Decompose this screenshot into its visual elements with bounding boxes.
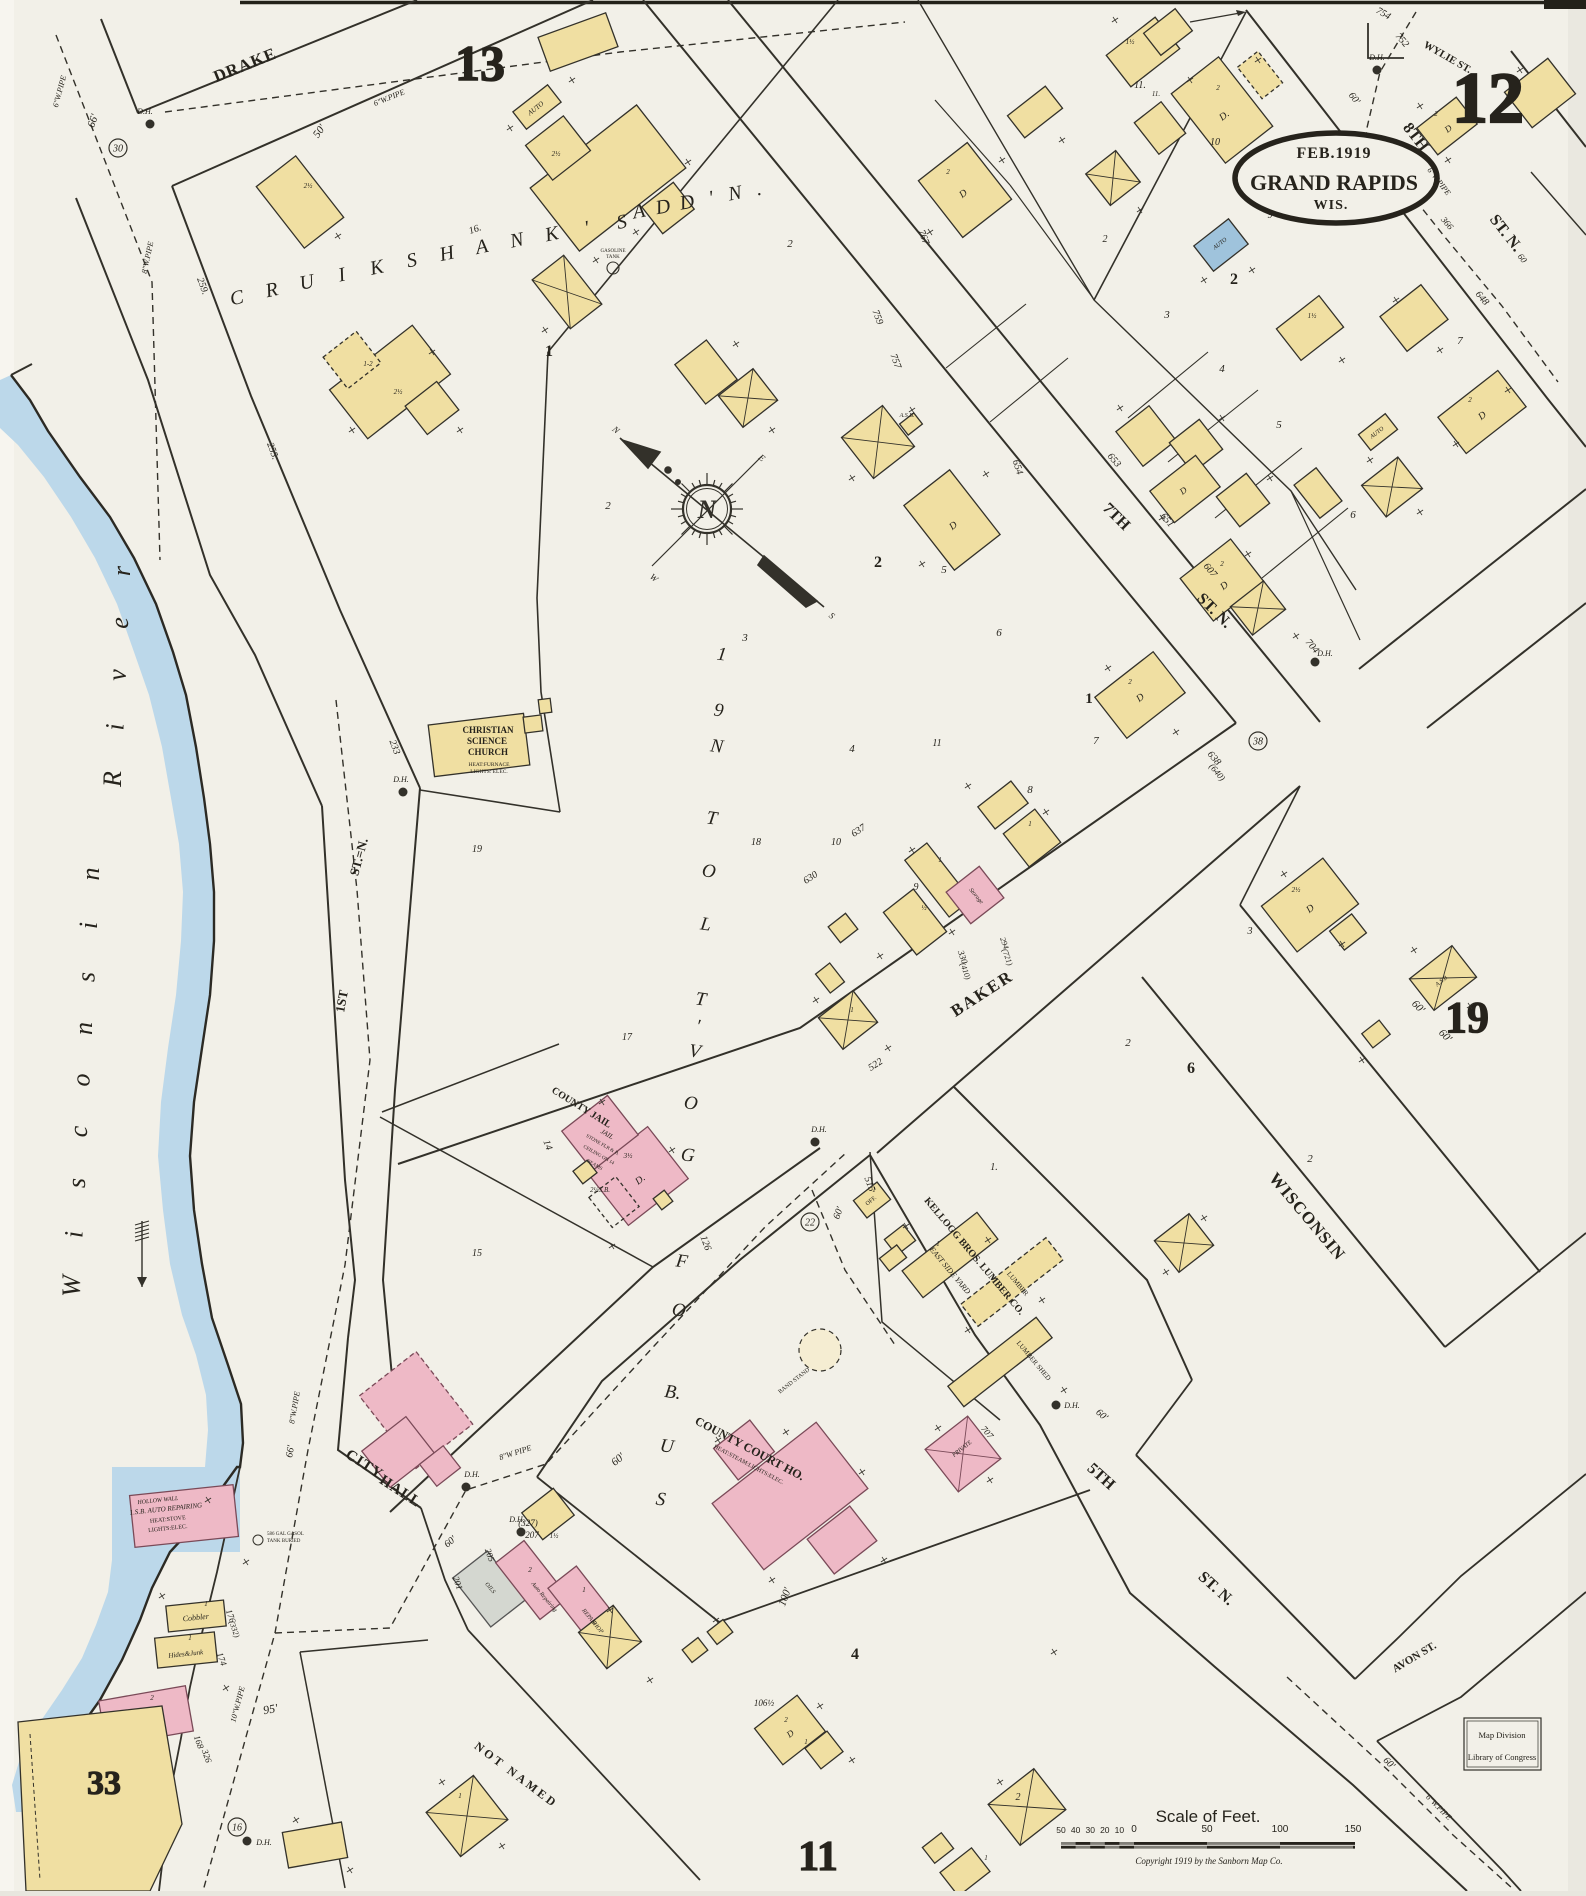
svg-text:95': 95': [262, 1701, 279, 1717]
svg-text:100: 100: [1272, 1824, 1289, 1835]
svg-text:8: 8: [1027, 784, 1033, 796]
svg-text:11.: 11.: [1134, 80, 1146, 91]
svg-text:4: 4: [851, 1646, 859, 1663]
svg-text:30: 30: [112, 144, 123, 155]
svg-text:1: 1: [545, 343, 553, 360]
svg-text:D.H.: D.H.: [463, 1470, 480, 1479]
svg-text:50: 50: [1201, 1824, 1213, 1835]
svg-text:W: W: [57, 1273, 86, 1297]
svg-text:LIGHTS: ELEC.: LIGHTS: ELEC.: [470, 769, 508, 775]
svg-text:11: 11: [932, 738, 941, 749]
svg-text:2: 2: [1125, 1037, 1131, 1049]
svg-text:4: 4: [1219, 363, 1225, 375]
svg-text:1: 1: [872, 1186, 876, 1194]
svg-text:17: 17: [622, 1032, 633, 1043]
svg-text:1.: 1.: [990, 1162, 998, 1173]
svg-text:D.H.: D.H.: [1368, 53, 1385, 62]
svg-text:13: 13: [455, 35, 505, 91]
svg-text:1: 1: [188, 1634, 192, 1642]
svg-text:2: 2: [1103, 234, 1108, 245]
svg-text:1: 1: [1085, 691, 1093, 707]
svg-text:s: s: [71, 972, 100, 982]
svg-text:SCIENCE: SCIENCE: [467, 736, 507, 746]
svg-text:2: 2: [528, 1566, 532, 1574]
svg-text:4: 4: [849, 743, 855, 755]
svg-text:i: i: [74, 922, 103, 929]
svg-text:WIS.: WIS.: [1314, 198, 1349, 213]
svg-text:CHRISTIAN: CHRISTIAN: [462, 725, 514, 735]
svg-text:Copyright 1919 by the Sanborn: Copyright 1919 by the Sanborn Map Co.: [1135, 1856, 1282, 1866]
svg-text:6: 6: [996, 627, 1002, 639]
svg-text:c: c: [64, 1125, 93, 1137]
svg-text:1½: 1½: [1126, 38, 1136, 46]
svg-text:D.H.: D.H.: [810, 1125, 827, 1134]
svg-text:D.H.: D.H.: [136, 107, 153, 116]
svg-text:20: 20: [1100, 1825, 1110, 1835]
svg-text:2: 2: [1016, 1792, 1021, 1803]
svg-text:1: 1: [850, 1006, 854, 1014]
svg-text:2½: 2½: [1292, 886, 1302, 894]
svg-text:16: 16: [232, 1823, 242, 1834]
svg-text:D.H.: D.H.: [1063, 1401, 1080, 1410]
svg-text:19: 19: [472, 844, 482, 855]
svg-text:1: 1: [984, 1854, 988, 1862]
svg-text:2: 2: [946, 168, 950, 176]
svg-text:o: o: [67, 1074, 96, 1087]
svg-text:GASOLINE: GASOLINE: [601, 249, 626, 254]
svg-text:(327): (327): [518, 1518, 538, 1528]
svg-text:2: 2: [787, 238, 793, 250]
svg-text:11.: 11.: [1152, 90, 1160, 98]
svg-text:3½: 3½: [623, 1152, 634, 1160]
svg-text:2: 2: [1216, 84, 1220, 92]
svg-text:5: 5: [941, 564, 947, 576]
svg-text:6: 6: [1350, 509, 1356, 521]
svg-text:r: r: [107, 565, 136, 576]
svg-text:2: 2: [1468, 396, 1472, 404]
svg-text:1½: 1½: [550, 1532, 560, 1540]
svg-text:2: 2: [1230, 271, 1238, 288]
svg-text:2: 2: [784, 1716, 788, 1724]
svg-text:A.S.B.: A.S.B.: [899, 413, 915, 419]
svg-text:GRAND RAPIDS: GRAND RAPIDS: [1250, 170, 1418, 195]
svg-text:i: i: [100, 723, 129, 730]
svg-text:2: 2: [1434, 110, 1438, 118]
svg-text:15: 15: [472, 1248, 482, 1259]
svg-text:2½: 2½: [304, 182, 314, 190]
svg-text:10: 10: [1115, 1825, 1125, 1835]
svg-text:1: 1: [936, 1240, 940, 1248]
svg-text:150: 150: [1345, 1824, 1362, 1835]
svg-text:106½: 106½: [754, 1698, 775, 1708]
svg-text:2: 2: [1128, 678, 1132, 686]
svg-text:2: 2: [150, 1694, 154, 1702]
svg-text:1: 1: [804, 1738, 808, 1746]
svg-text:1½: 1½: [1308, 312, 1318, 320]
svg-text:1: 1: [204, 1600, 208, 1608]
svg-text:2: 2: [1220, 560, 1224, 568]
svg-text:1: 1: [1028, 820, 1032, 828]
svg-text:½: ½: [921, 904, 927, 912]
svg-text:e: e: [105, 617, 134, 629]
svg-text:9: 9: [914, 882, 919, 893]
svg-text:40: 40: [1071, 1825, 1081, 1835]
svg-text:7: 7: [1457, 335, 1463, 347]
svg-text:n: n: [76, 868, 105, 881]
svg-text:Library of Congress: Library of Congress: [1468, 1752, 1536, 1762]
svg-text:18: 18: [751, 837, 761, 848]
svg-text:3: 3: [1163, 309, 1170, 321]
svg-text:3: 3: [741, 632, 748, 644]
svg-text:n: n: [69, 1022, 98, 1035]
svg-text:33: 33: [87, 1765, 121, 1802]
svg-text:FEB.1919: FEB.1919: [1296, 145, 1371, 162]
svg-text:2: 2: [605, 500, 611, 512]
svg-text:1: 1: [458, 1792, 462, 1800]
svg-text:50: 50: [1056, 1825, 1066, 1835]
svg-text:D.H.: D.H.: [255, 1838, 272, 1847]
svg-text:9: 9: [1268, 210, 1273, 221]
svg-text:1: 1: [938, 856, 942, 864]
svg-text:CHURCH: CHURCH: [468, 747, 508, 757]
svg-text:2½: 2½: [552, 150, 562, 158]
svg-text:2½S.B.: 2½S.B.: [590, 1186, 610, 1194]
svg-text:11: 11: [798, 1834, 838, 1880]
svg-text:586 GAL GASOL: 586 GAL GASOL: [267, 1532, 304, 1537]
svg-text:5: 5: [1276, 419, 1282, 431]
svg-text:30: 30: [1085, 1825, 1095, 1835]
svg-text:TANK BURIED: TANK BURIED: [267, 1539, 301, 1544]
svg-text:10: 10: [831, 837, 841, 848]
svg-text:1: 1: [582, 1586, 586, 1594]
svg-text:2½: 2½: [394, 388, 404, 396]
svg-text:2: 2: [1307, 1153, 1313, 1165]
svg-text:R: R: [98, 771, 127, 788]
svg-text:38: 38: [1252, 737, 1263, 748]
svg-text:1-2: 1-2: [363, 360, 373, 368]
svg-text:207: 207: [525, 1530, 539, 1540]
svg-text:0: 0: [1131, 1824, 1137, 1835]
svg-text:s: s: [62, 1178, 91, 1188]
svg-text:2: 2: [874, 554, 882, 571]
svg-text:i: i: [59, 1231, 88, 1238]
svg-text:TANK: TANK: [606, 255, 620, 260]
svg-text:v: v: [103, 669, 132, 681]
svg-text:B.: B.: [663, 1381, 682, 1404]
svg-text:6: 6: [1187, 1060, 1195, 1077]
svg-text:10: 10: [1210, 137, 1220, 148]
svg-text:Map Division: Map Division: [1479, 1730, 1527, 1740]
svg-text:7: 7: [1093, 735, 1099, 747]
svg-text:3: 3: [1247, 926, 1253, 937]
svg-text:D.H.: D.H.: [392, 775, 409, 784]
svg-text:22: 22: [805, 1218, 815, 1229]
svg-text:HEAT:FURNACE: HEAT:FURNACE: [469, 762, 511, 768]
